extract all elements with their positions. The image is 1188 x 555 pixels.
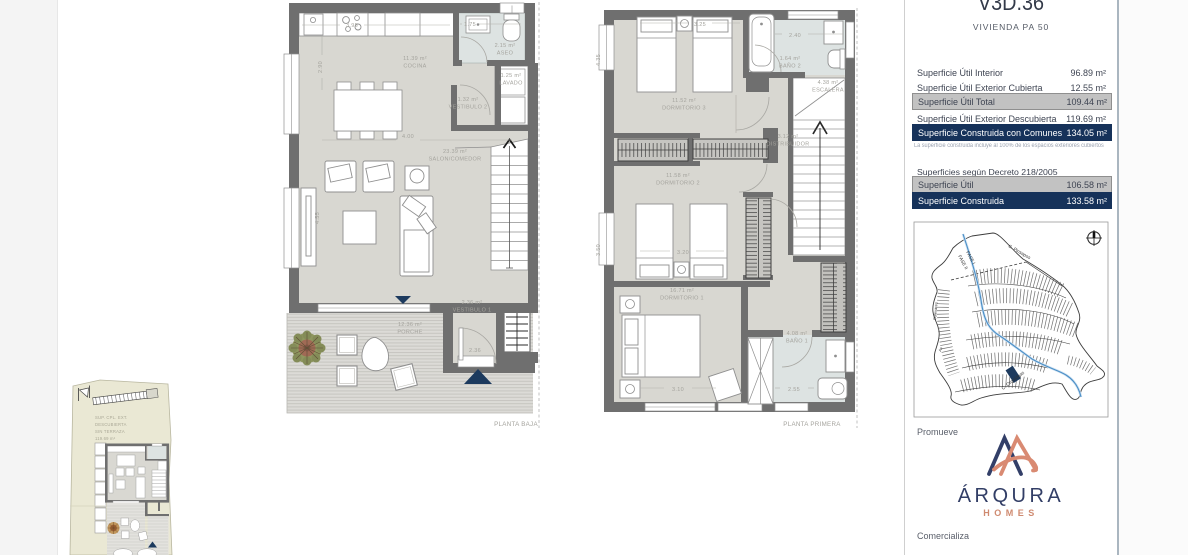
svg-text:3.12 m²: 3.12 m²: [778, 134, 799, 140]
svg-text:DORMITORIO 1: DORMITORIO 1: [660, 296, 704, 302]
svg-text:4.38 m²: 4.38 m²: [818, 80, 839, 86]
svg-text:PORCHE: PORCHE: [397, 330, 422, 336]
svg-text:2.40: 2.40: [789, 33, 801, 39]
svg-text:12.36 m²: 12.36 m²: [398, 322, 422, 328]
svg-text:3.95: 3.95: [346, 23, 358, 29]
svg-text:SIN TERRAZA: SIN TERRAZA: [95, 429, 125, 434]
svg-text:BAÑO 1: BAÑO 1: [786, 338, 808, 345]
svg-text:SALON/COMEDOR: SALON/COMEDOR: [429, 157, 482, 163]
svg-text:BAÑO 2: BAÑO 2: [779, 63, 801, 70]
svg-text:ESCALERA: ESCALERA: [812, 88, 844, 94]
svg-text:11.39 m²: 11.39 m²: [403, 56, 427, 62]
svg-text:2.90: 2.90: [318, 61, 324, 73]
svg-text:1.32 m²: 1.32 m²: [458, 97, 479, 103]
svg-text:23.39 m²: 23.39 m²: [443, 149, 467, 155]
svg-text:DORMITORIO 2: DORMITORIO 2: [656, 181, 700, 187]
svg-text:3.50: 3.50: [596, 244, 602, 256]
svg-text:2.15 m²: 2.15 m²: [495, 43, 516, 49]
svg-text:2.36 m²: 2.36 m²: [462, 300, 483, 306]
svg-text:4.35: 4.35: [596, 54, 602, 66]
svg-text:DISTRIBUIDOR: DISTRIBUIDOR: [766, 142, 809, 148]
svg-text:4.08 m²: 4.08 m²: [787, 331, 808, 337]
svg-text:DORMITORIO 3: DORMITORIO 3: [662, 106, 706, 112]
svg-text:11.58 m²: 11.58 m²: [666, 173, 690, 179]
svg-text:16.71 m²: 16.71 m²: [670, 288, 694, 294]
svg-text:3.10: 3.10: [672, 387, 684, 393]
svg-text:PLANTA BAJA: PLANTA BAJA: [494, 421, 538, 428]
svg-text:DESCUBIERTA: DESCUBIERTA: [95, 422, 127, 427]
svg-text:119.69 m²: 119.69 m²: [95, 436, 116, 441]
svg-text:1.25 m²: 1.25 m²: [501, 73, 522, 79]
svg-text:11.52 m²: 11.52 m²: [672, 98, 696, 104]
svg-text:2.36: 2.36: [469, 348, 481, 354]
svg-text:3.20: 3.20: [677, 250, 689, 256]
svg-text:VESTIBULO 1: VESTIBULO 1: [453, 308, 492, 314]
svg-text:LAVADO: LAVADO: [499, 81, 523, 87]
svg-text:VESTIBULO 2: VESTIBULO 2: [449, 105, 488, 111]
svg-text:COCINA: COCINA: [403, 64, 426, 70]
svg-text:2.55: 2.55: [788, 387, 800, 393]
svg-text:1.75: 1.75: [464, 22, 476, 28]
svg-text:4.00: 4.00: [402, 134, 414, 140]
svg-text:4.55: 4.55: [315, 212, 321, 224]
svg-text:3.25: 3.25: [694, 22, 706, 28]
svg-text:PLANTA PRIMERA: PLANTA PRIMERA: [783, 421, 841, 428]
svg-text:SUP. CPL. EXT.: SUP. CPL. EXT.: [95, 415, 128, 420]
svg-text:1.64 m²: 1.64 m²: [780, 56, 801, 62]
svg-text:ASEO: ASEO: [497, 51, 514, 57]
